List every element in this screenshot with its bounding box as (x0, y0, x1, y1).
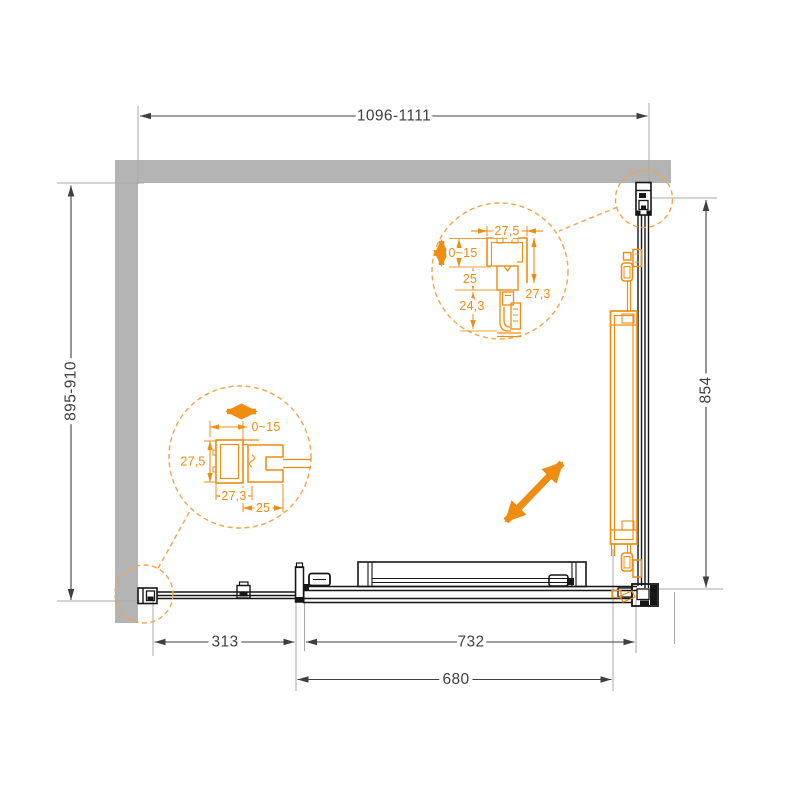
dim-left-height-label: 895-910 (63, 361, 80, 421)
detail-left-width-label: 27,3 (221, 489, 246, 503)
dim-right-height-label: 854 (698, 376, 715, 403)
dim-bottom-door-label: 680 (442, 671, 469, 688)
shower-enclosure-plan-drawing: 27,5 0~15 25 24,3 27,3 0~15 (0, 0, 800, 800)
detail-top-adjust-label: 0~15 (449, 246, 478, 260)
detail-left-adjust-label: 0~15 (252, 420, 281, 434)
technical-drawing-canvas: 27,5 0~15 25 24,3 27,3 0~15 (0, 0, 800, 800)
detail-top-lower-label: 24,3 (459, 299, 484, 313)
top-wall (115, 160, 671, 183)
detail-top-width-label: 27,5 (494, 224, 519, 238)
dim-top-width-label: 1096-1111 (357, 108, 431, 125)
detail-top-height-label: 27,3 (525, 287, 550, 301)
detail-left-height-label: 27,5 (180, 455, 205, 469)
left-wall (115, 160, 138, 623)
detail-left-depth-label: 25 (256, 501, 270, 515)
detail-top-mid-label: 25 (463, 272, 477, 286)
dim-bottom-opening-label: 732 (457, 634, 484, 651)
dim-bottom-left-label: 313 (211, 634, 238, 651)
